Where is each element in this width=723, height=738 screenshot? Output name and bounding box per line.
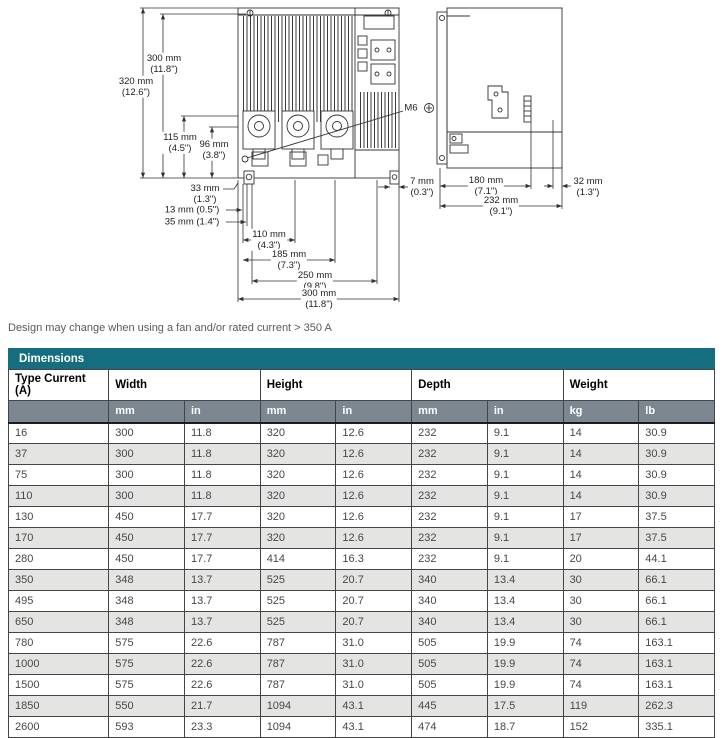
table-cell: 43.1 bbox=[336, 696, 412, 717]
table-cell: 474 bbox=[412, 717, 488, 738]
table-cell: 320 bbox=[260, 444, 336, 465]
table-cell: 340 bbox=[412, 591, 488, 612]
table-cell: 66.1 bbox=[639, 591, 715, 612]
table-title: Dimensions bbox=[8, 348, 715, 369]
table-cell: 66.1 bbox=[639, 612, 715, 633]
table-cell: 340 bbox=[412, 570, 488, 591]
dim-label-320mm: 320 mm (12.6") bbox=[118, 76, 154, 98]
table-cell: 450 bbox=[109, 549, 185, 570]
table-cell: 11.8 bbox=[184, 444, 260, 465]
table-cell: 525 bbox=[260, 591, 336, 612]
table-cell: 280 bbox=[9, 549, 109, 570]
table-cell: 1850 bbox=[9, 696, 109, 717]
table-cell: 1000 bbox=[9, 654, 109, 675]
unit-depth-in: in bbox=[487, 401, 563, 423]
table-cell: 445 bbox=[412, 696, 488, 717]
table-cell: 19.9 bbox=[487, 654, 563, 675]
table-cell: 119 bbox=[563, 696, 639, 717]
table-cell: 2600 bbox=[9, 717, 109, 738]
table-cell: 232 bbox=[412, 465, 488, 486]
table-row: 11030011.832012.62329.11430.9 bbox=[9, 486, 715, 507]
table-cell: 780 bbox=[9, 633, 109, 654]
table-cell: 30 bbox=[563, 612, 639, 633]
table-cell: 13.7 bbox=[184, 612, 260, 633]
table-cell: 130 bbox=[9, 507, 109, 528]
col-header-width: Width bbox=[109, 370, 260, 401]
dim-label-185mm: 185 mm (7.3") bbox=[271, 249, 307, 271]
table-cell: 66.1 bbox=[639, 570, 715, 591]
dimension-diagram: 320 mm (12.6") 300 mm (11.8") 115 mm (4.… bbox=[0, 0, 723, 312]
table-cell: 9.1 bbox=[487, 465, 563, 486]
table-cell: 650 bbox=[9, 612, 109, 633]
table-cell: 17.5 bbox=[487, 696, 563, 717]
dim-label-13mm: 13 mm (0.5") bbox=[164, 204, 221, 215]
unit-height-mm: mm bbox=[260, 401, 336, 423]
table-cell: 232 bbox=[412, 486, 488, 507]
table-row: 17045017.732012.62329.11737.5 bbox=[9, 528, 715, 549]
table-cell: 13.7 bbox=[184, 591, 260, 612]
table-cell: 350 bbox=[9, 570, 109, 591]
table-cell: 12.6 bbox=[336, 423, 412, 444]
table-cell: 21.7 bbox=[184, 696, 260, 717]
table-cell: 450 bbox=[109, 528, 185, 549]
table-cell: 505 bbox=[412, 675, 488, 696]
table-cell: 414 bbox=[260, 549, 336, 570]
line-art bbox=[0, 0, 723, 312]
col-header-height: Height bbox=[260, 370, 411, 401]
dim-label-33mm: 33 mm (1.3") bbox=[189, 183, 220, 205]
table-cell: 1094 bbox=[260, 717, 336, 738]
table-cell: 17.7 bbox=[184, 507, 260, 528]
unit-weight-kg: kg bbox=[563, 401, 639, 423]
table-cell: 37.5 bbox=[639, 528, 715, 549]
table-cell: 505 bbox=[412, 633, 488, 654]
table-cell: 320 bbox=[260, 423, 336, 444]
table-cell: 505 bbox=[412, 654, 488, 675]
table-cell: 37 bbox=[9, 444, 109, 465]
table-cell: 9.1 bbox=[487, 423, 563, 444]
dimensions-table-body: 1630011.832012.62329.11430.93730011.8320… bbox=[9, 423, 715, 738]
front-view bbox=[238, 8, 399, 184]
dimensions-section: Dimensions Type Current (A) Width Height… bbox=[8, 348, 715, 738]
table-cell: 74 bbox=[563, 675, 639, 696]
table-row: 65034813.752520.734013.43066.1 bbox=[9, 612, 715, 633]
table-cell: 20.7 bbox=[336, 570, 412, 591]
dim-label-35mm: 35 mm (1.4") bbox=[164, 216, 221, 227]
table-cell: 14 bbox=[563, 444, 639, 465]
table-cell: 320 bbox=[260, 486, 336, 507]
table-cell: 1500 bbox=[9, 675, 109, 696]
table-cell: 787 bbox=[260, 654, 336, 675]
table-cell: 110 bbox=[9, 486, 109, 507]
table-cell: 450 bbox=[109, 507, 185, 528]
table-cell: 550 bbox=[109, 696, 185, 717]
table-cell: 31.0 bbox=[336, 675, 412, 696]
dim-label-300mm-bottom: 300 mm (11.8") bbox=[301, 288, 337, 310]
table-cell: 232 bbox=[412, 528, 488, 549]
table-cell: 9.1 bbox=[487, 528, 563, 549]
table-cell: 9.1 bbox=[487, 486, 563, 507]
table-cell: 575 bbox=[109, 654, 185, 675]
table-row: 100057522.678731.050519.974163.1 bbox=[9, 654, 715, 675]
table-cell: 152 bbox=[563, 717, 639, 738]
table-cell: 30.9 bbox=[639, 486, 715, 507]
table-cell: 11.8 bbox=[184, 423, 260, 444]
table-cell: 17 bbox=[563, 507, 639, 528]
unit-width-in: in bbox=[184, 401, 260, 423]
table-cell: 13.4 bbox=[487, 570, 563, 591]
table-row: 1630011.832012.62329.11430.9 bbox=[9, 423, 715, 444]
group-header-row: Type Current (A) Width Height Depth Weig… bbox=[9, 370, 715, 401]
table-cell: 12.6 bbox=[336, 465, 412, 486]
table-cell: 12.6 bbox=[336, 444, 412, 465]
table-row: 7530011.832012.62329.11430.9 bbox=[9, 465, 715, 486]
col-header-type-current: Type Current (A) bbox=[9, 370, 109, 401]
table-cell: 17 bbox=[563, 528, 639, 549]
table-cell: 14 bbox=[563, 465, 639, 486]
design-note: Design may change when using a fan and/o… bbox=[8, 322, 723, 334]
table-cell: 262.3 bbox=[639, 696, 715, 717]
table-cell: 14 bbox=[563, 486, 639, 507]
unit-depth-mm: mm bbox=[412, 401, 488, 423]
table-cell: 18.7 bbox=[487, 717, 563, 738]
table-cell: 19.9 bbox=[487, 675, 563, 696]
table-cell: 30 bbox=[563, 591, 639, 612]
table-cell: 300 bbox=[109, 423, 185, 444]
table-cell: 22.6 bbox=[184, 633, 260, 654]
table-row: 13045017.732012.62329.11737.5 bbox=[9, 507, 715, 528]
table-cell: 11.8 bbox=[184, 486, 260, 507]
table-row: 150057522.678731.050519.974163.1 bbox=[9, 675, 715, 696]
table-cell: 575 bbox=[109, 633, 185, 654]
dim-label-232mm: 232 mm (9.1") bbox=[483, 195, 519, 217]
table-row: 260059323.3109443.147418.7152335.1 bbox=[9, 717, 715, 738]
table-cell: 20.7 bbox=[336, 612, 412, 633]
table-cell: 11.8 bbox=[184, 465, 260, 486]
table-cell: 44.1 bbox=[639, 549, 715, 570]
table-cell: 37.5 bbox=[639, 507, 715, 528]
table-cell: 348 bbox=[109, 591, 185, 612]
table-cell: 232 bbox=[412, 444, 488, 465]
table-cell: 340 bbox=[412, 612, 488, 633]
dim-label-115mm: 115 mm (4.5") bbox=[162, 132, 198, 154]
dim-label-96mm: 96 mm (3.8") bbox=[198, 139, 229, 161]
table-cell: 17.7 bbox=[184, 528, 260, 549]
table-cell: 335.1 bbox=[639, 717, 715, 738]
table-row: 185055021.7109443.144517.5119262.3 bbox=[9, 696, 715, 717]
table-cell: 74 bbox=[563, 633, 639, 654]
table-cell: 320 bbox=[260, 465, 336, 486]
table-cell: 232 bbox=[412, 549, 488, 570]
units-row-spacer bbox=[9, 401, 109, 423]
dim-label-7mm: 7 mm (0.3") bbox=[409, 176, 435, 198]
table-cell: 593 bbox=[109, 717, 185, 738]
table-cell: 16 bbox=[9, 423, 109, 444]
table-cell: 320 bbox=[260, 507, 336, 528]
table-cell: 22.6 bbox=[184, 675, 260, 696]
table-cell: 30.9 bbox=[639, 423, 715, 444]
table-cell: 525 bbox=[260, 612, 336, 633]
table-cell: 74 bbox=[563, 654, 639, 675]
unit-height-in: in bbox=[336, 401, 412, 423]
table-cell: 20 bbox=[563, 549, 639, 570]
table-cell: 19.9 bbox=[487, 633, 563, 654]
table-cell: 13.4 bbox=[487, 591, 563, 612]
table-cell: 163.1 bbox=[639, 633, 715, 654]
table-cell: 22.6 bbox=[184, 654, 260, 675]
units-header-row: mm in mm in mm in kg lb bbox=[9, 401, 715, 423]
table-cell: 300 bbox=[109, 486, 185, 507]
table-cell: 9.1 bbox=[487, 549, 563, 570]
table-cell: 23.3 bbox=[184, 717, 260, 738]
table-cell: 320 bbox=[260, 528, 336, 549]
table-cell: 12.6 bbox=[336, 507, 412, 528]
table-cell: 31.0 bbox=[336, 633, 412, 654]
table-cell: 787 bbox=[260, 675, 336, 696]
table-cell: 495 bbox=[9, 591, 109, 612]
table-cell: 16.3 bbox=[336, 549, 412, 570]
table-cell: 300 bbox=[109, 465, 185, 486]
table-cell: 300 bbox=[109, 444, 185, 465]
table-cell: 43.1 bbox=[336, 717, 412, 738]
dim-label-m6: M6 bbox=[403, 102, 418, 113]
dim-label-32mm: 32 mm (1.3") bbox=[572, 176, 603, 198]
table-row: 3730011.832012.62329.11430.9 bbox=[9, 444, 715, 465]
table-cell: 75 bbox=[9, 465, 109, 486]
table-cell: 163.1 bbox=[639, 654, 715, 675]
table-cell: 9.1 bbox=[487, 507, 563, 528]
side-view bbox=[437, 8, 562, 168]
col-header-weight: Weight bbox=[563, 370, 714, 401]
table-cell: 30.9 bbox=[639, 444, 715, 465]
table-cell: 20.7 bbox=[336, 591, 412, 612]
table-row: 78057522.678731.050519.974163.1 bbox=[9, 633, 715, 654]
table-cell: 525 bbox=[260, 570, 336, 591]
table-cell: 170 bbox=[9, 528, 109, 549]
dim-label-300mm-vert: 300 mm (11.8") bbox=[146, 53, 182, 75]
table-cell: 31.0 bbox=[336, 654, 412, 675]
table-row: 35034813.752520.734013.43066.1 bbox=[9, 570, 715, 591]
col-header-depth: Depth bbox=[412, 370, 563, 401]
table-cell: 232 bbox=[412, 423, 488, 444]
table-cell: 575 bbox=[109, 675, 185, 696]
table-cell: 1094 bbox=[260, 696, 336, 717]
table-row: 28045017.741416.32329.12044.1 bbox=[9, 549, 715, 570]
table-cell: 14 bbox=[563, 423, 639, 444]
table-cell: 348 bbox=[109, 612, 185, 633]
table-cell: 17.7 bbox=[184, 549, 260, 570]
unit-width-mm: mm bbox=[109, 401, 185, 423]
table-cell: 163.1 bbox=[639, 675, 715, 696]
table-cell: 232 bbox=[412, 507, 488, 528]
dimensions-table: Type Current (A) Width Height Depth Weig… bbox=[8, 369, 715, 738]
table-cell: 30.9 bbox=[639, 465, 715, 486]
table-cell: 13.7 bbox=[184, 570, 260, 591]
table-row: 49534813.752520.734013.43066.1 bbox=[9, 591, 715, 612]
table-cell: 30 bbox=[563, 570, 639, 591]
table-cell: 12.6 bbox=[336, 486, 412, 507]
table-cell: 787 bbox=[260, 633, 336, 654]
table-cell: 12.6 bbox=[336, 528, 412, 549]
table-cell: 348 bbox=[109, 570, 185, 591]
table-cell: 9.1 bbox=[487, 444, 563, 465]
unit-weight-lb: lb bbox=[639, 401, 715, 423]
table-cell: 13.4 bbox=[487, 612, 563, 633]
